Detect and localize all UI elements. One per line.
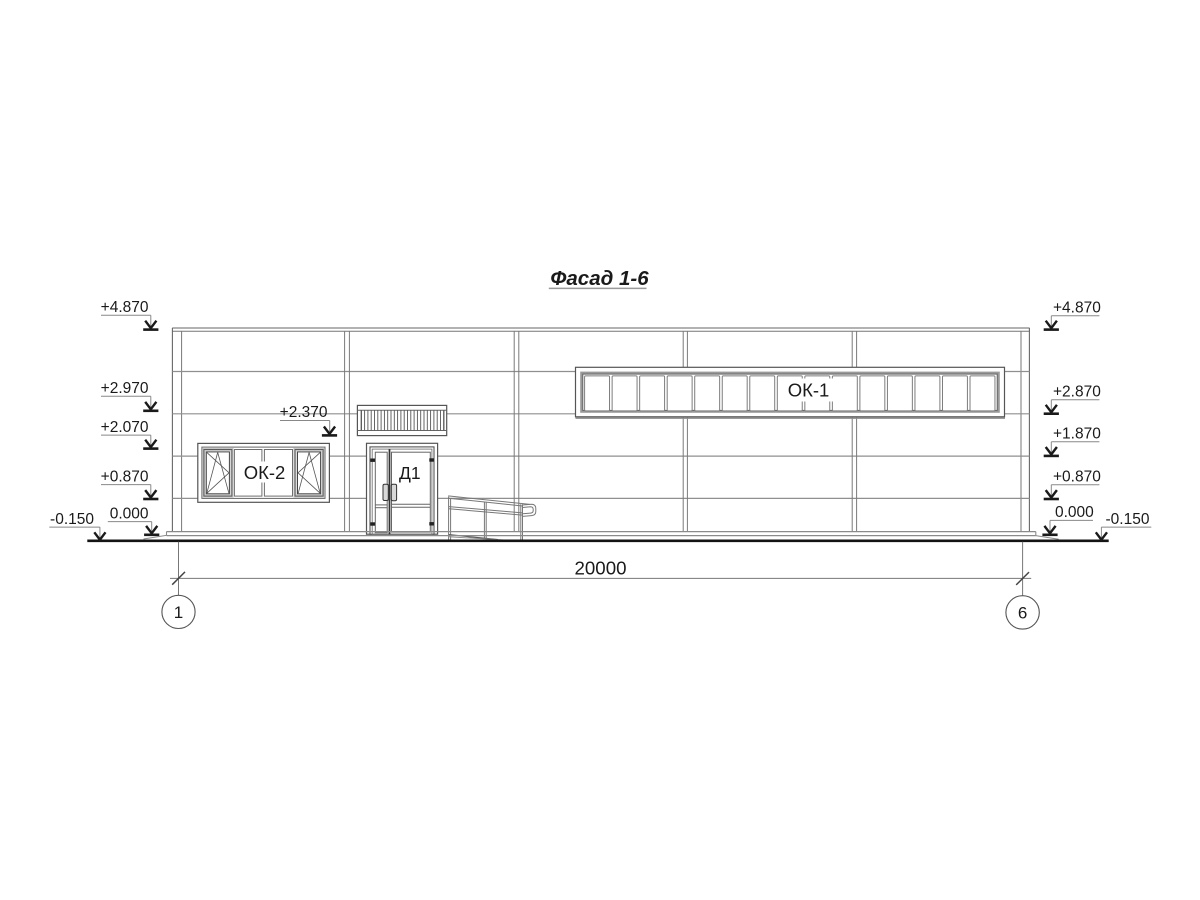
- svg-text:20000: 20000: [575, 558, 627, 579]
- svg-text:ОК-1: ОК-1: [788, 380, 830, 401]
- svg-text:+2.870: +2.870: [1053, 384, 1101, 401]
- svg-text:-0.150: -0.150: [1106, 511, 1150, 528]
- svg-text:-0.150: -0.150: [50, 511, 94, 528]
- svg-text:+4.870: +4.870: [101, 299, 149, 316]
- svg-text:+2.370: +2.370: [280, 404, 328, 421]
- svg-text:+0.870: +0.870: [101, 468, 149, 485]
- svg-text:Фасад 1-6: Фасад 1-6: [550, 267, 649, 290]
- svg-text:0.000: 0.000: [110, 505, 149, 522]
- svg-text:Д1: Д1: [399, 463, 421, 483]
- svg-text:0.000: 0.000: [1055, 504, 1094, 521]
- svg-text:+4.870: +4.870: [1053, 300, 1101, 317]
- svg-text:6: 6: [1018, 604, 1027, 623]
- svg-text:ОК-2: ОК-2: [244, 462, 286, 483]
- svg-text:+2.970: +2.970: [101, 380, 149, 397]
- svg-text:+0.870: +0.870: [1053, 469, 1101, 486]
- svg-text:+2.070: +2.070: [101, 419, 149, 436]
- svg-text:1: 1: [174, 603, 183, 622]
- svg-text:+1.870: +1.870: [1053, 426, 1101, 443]
